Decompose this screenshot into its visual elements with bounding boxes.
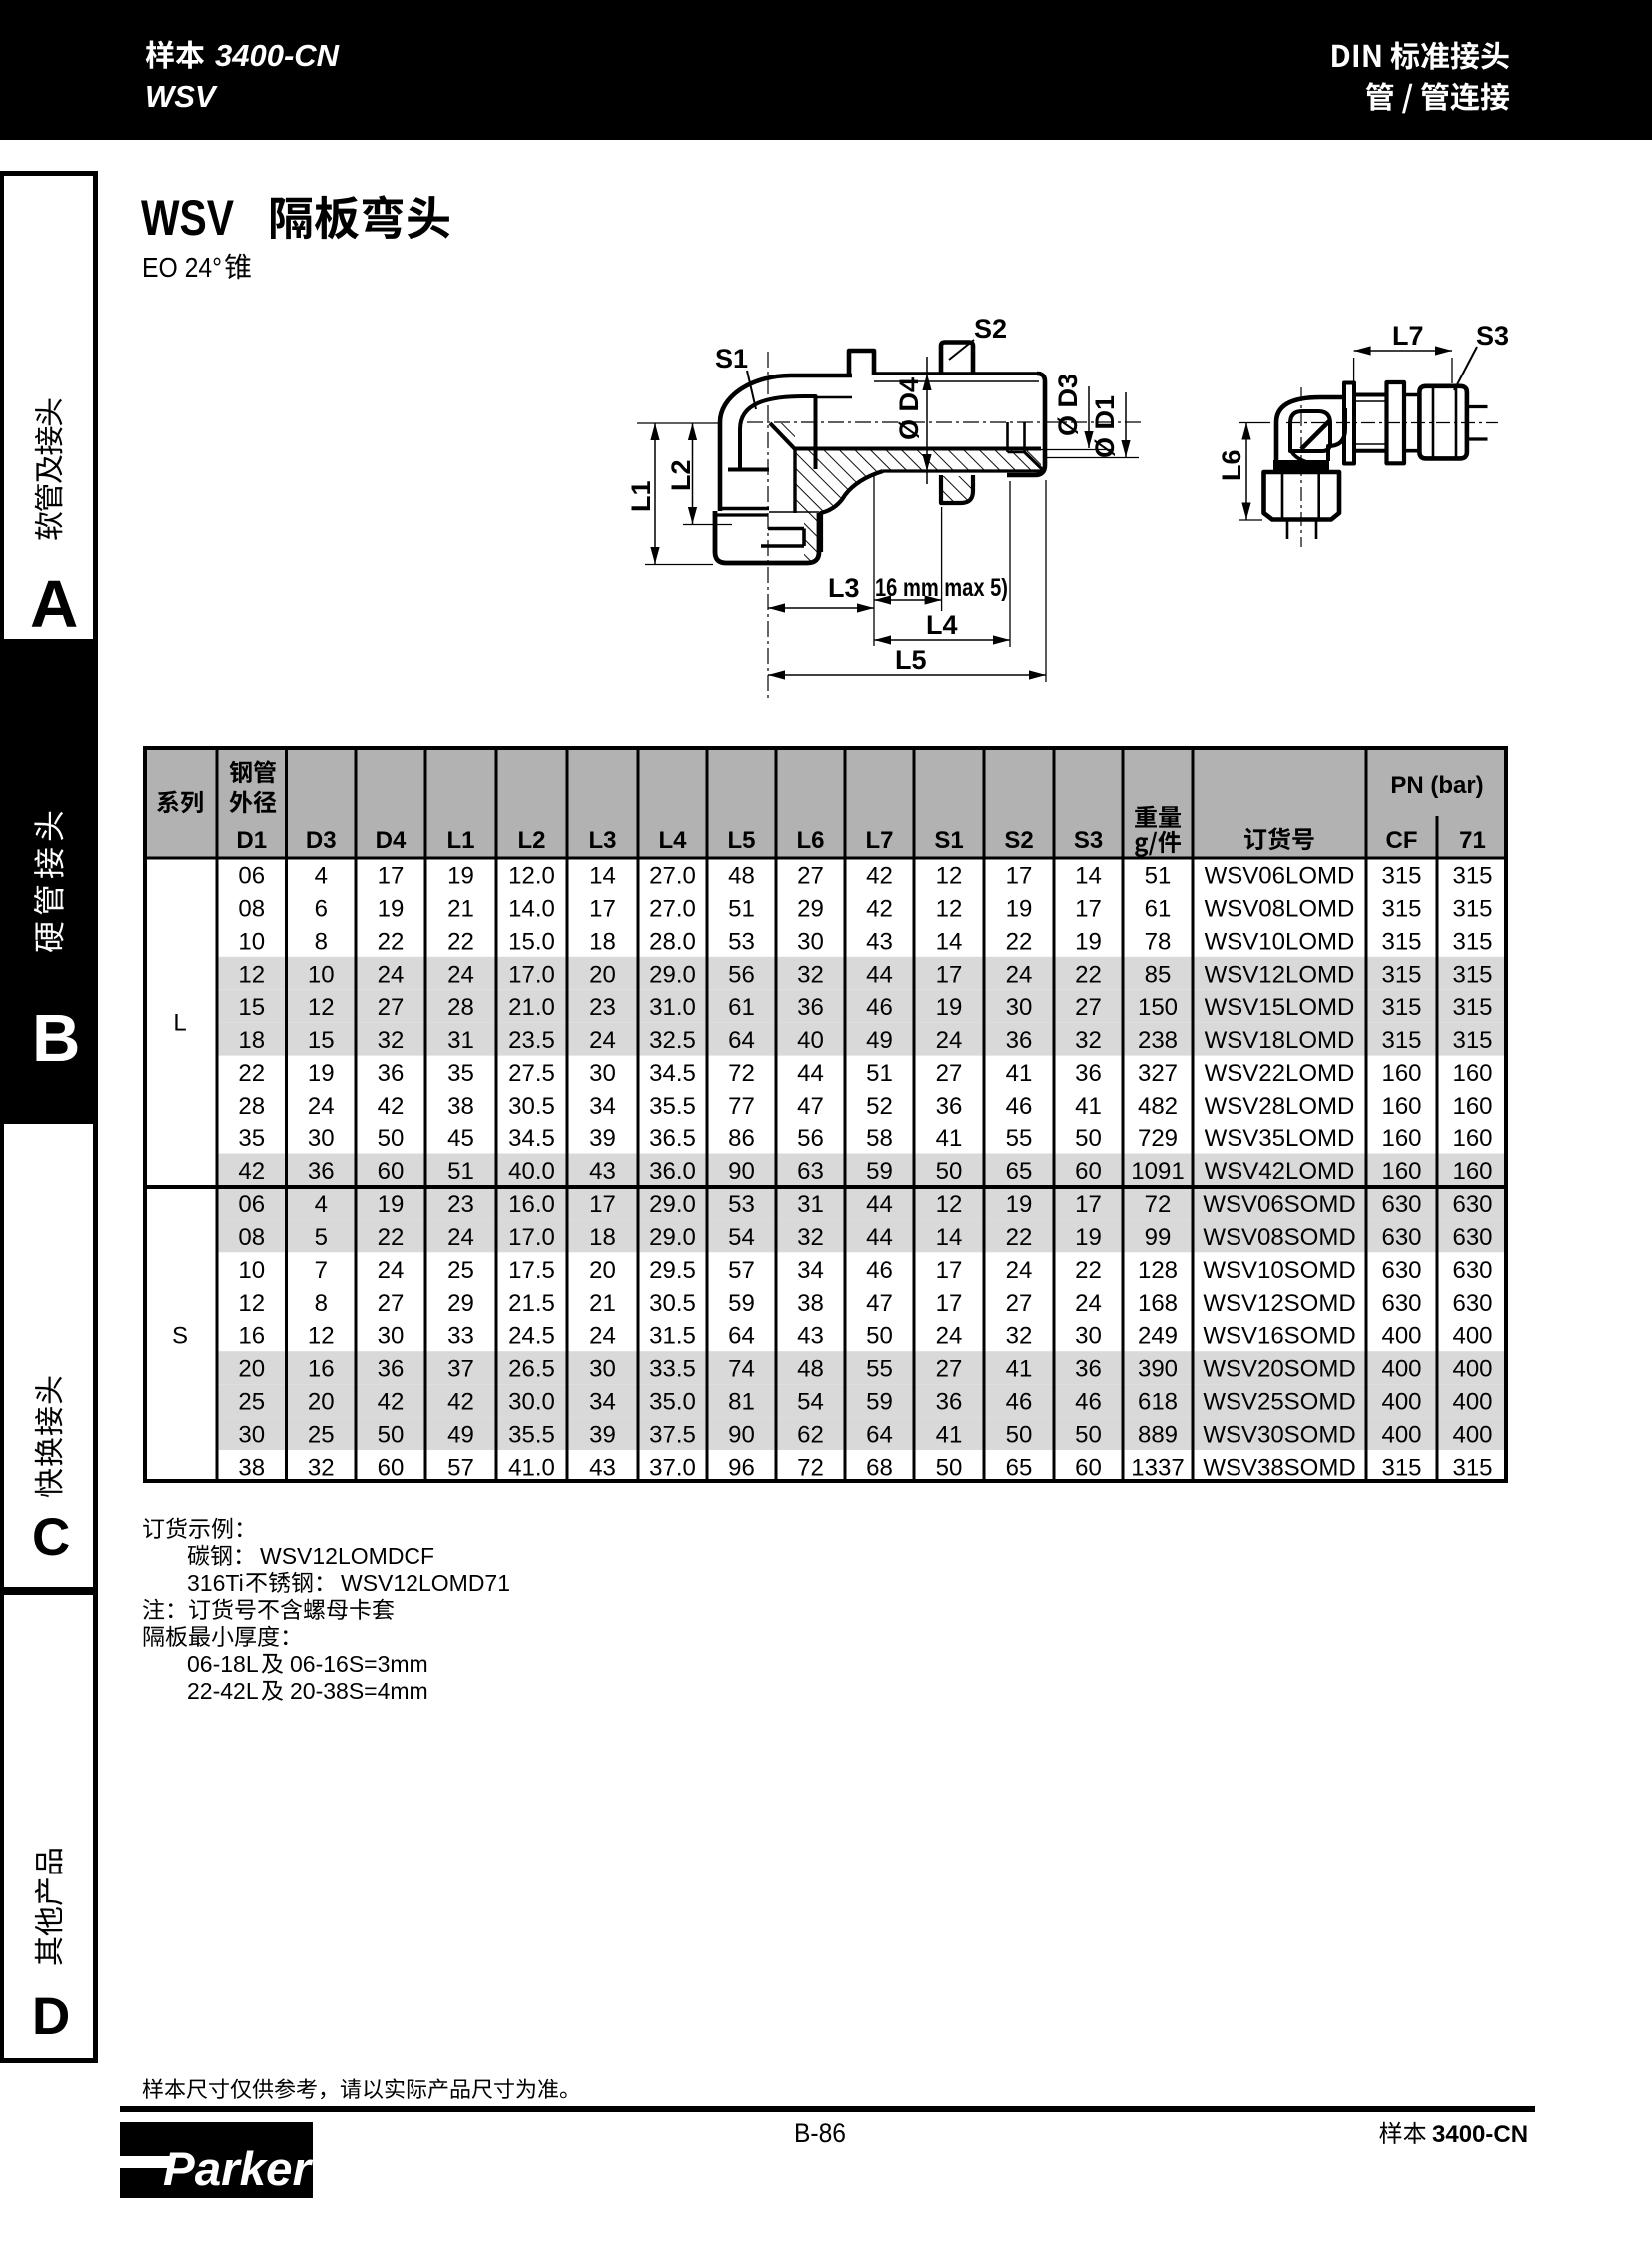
svg-text:18: 18	[589, 928, 616, 955]
svg-text:12: 12	[238, 961, 265, 988]
svg-text:34.5: 34.5	[508, 1125, 555, 1152]
svg-text:12: 12	[238, 1290, 265, 1317]
svg-text:L: L	[173, 1010, 186, 1037]
svg-text:17: 17	[589, 895, 616, 922]
svg-text:59: 59	[866, 1389, 893, 1416]
svg-text:630: 630	[1381, 1257, 1421, 1284]
svg-text:17: 17	[1075, 895, 1102, 922]
svg-text:12: 12	[936, 1191, 963, 1218]
svg-text:L2: L2	[666, 459, 696, 491]
svg-text:150: 150	[1138, 994, 1178, 1021]
svg-text:35.0: 35.0	[649, 1389, 696, 1416]
svg-text:30: 30	[1006, 994, 1033, 1021]
svg-text:19: 19	[1006, 1191, 1033, 1218]
svg-text:D4: D4	[376, 827, 407, 854]
svg-text:27: 27	[936, 1356, 963, 1383]
svg-text:64: 64	[866, 1422, 893, 1449]
svg-text:96: 96	[728, 1455, 755, 1482]
svg-text:43: 43	[589, 1455, 616, 1482]
svg-text:60: 60	[1075, 1158, 1102, 1185]
svg-text:WSV25SOMD: WSV25SOMD	[1203, 1389, 1355, 1416]
svg-text:41.0: 41.0	[508, 1455, 555, 1482]
svg-text:168: 168	[1138, 1290, 1178, 1317]
svg-text:L1: L1	[626, 480, 656, 512]
svg-text:630: 630	[1452, 1257, 1492, 1284]
svg-text:23: 23	[589, 994, 616, 1021]
svg-text:86: 86	[728, 1125, 755, 1152]
svg-text:51: 51	[447, 1158, 474, 1185]
svg-text:17: 17	[378, 862, 405, 889]
svg-text:46: 46	[866, 994, 893, 1021]
svg-text:22: 22	[378, 1224, 405, 1251]
svg-text:32: 32	[1006, 1323, 1033, 1350]
svg-text:C: C	[32, 1508, 70, 1567]
svg-text:19: 19	[1075, 928, 1102, 955]
svg-text:22: 22	[447, 928, 474, 955]
svg-text:315: 315	[1452, 994, 1492, 1021]
svg-text:315: 315	[1452, 928, 1492, 955]
svg-text:L3: L3	[828, 573, 860, 603]
svg-text:36: 36	[378, 1356, 405, 1383]
svg-text:50: 50	[378, 1422, 405, 1449]
svg-text:27: 27	[378, 994, 405, 1021]
svg-text:WSV: WSV	[145, 79, 218, 114]
svg-text:46: 46	[1006, 1093, 1033, 1120]
svg-text:32: 32	[1075, 1027, 1102, 1054]
svg-text:58: 58	[866, 1125, 893, 1152]
svg-text:630: 630	[1381, 1290, 1421, 1317]
svg-text:43: 43	[589, 1158, 616, 1185]
svg-text:WSV28LOMD: WSV28LOMD	[1205, 1093, 1355, 1120]
svg-text:WSV10SOMD: WSV10SOMD	[1203, 1257, 1355, 1284]
svg-text:15.0: 15.0	[508, 928, 555, 955]
svg-text:68: 68	[866, 1455, 893, 1482]
svg-text:S3: S3	[1074, 827, 1103, 854]
svg-text:19: 19	[1075, 1224, 1102, 1251]
svg-text:3400-CN: 3400-CN	[215, 38, 340, 73]
svg-text:65: 65	[1006, 1455, 1033, 1482]
svg-text:729: 729	[1138, 1125, 1178, 1152]
svg-text:A: A	[30, 567, 78, 642]
svg-text:72: 72	[1145, 1191, 1172, 1218]
svg-text:99: 99	[1145, 1224, 1172, 1251]
svg-text:24: 24	[936, 1323, 963, 1350]
svg-text:19: 19	[378, 1191, 405, 1218]
svg-text:10: 10	[308, 961, 335, 988]
svg-text:46: 46	[1006, 1389, 1033, 1416]
svg-text:400: 400	[1381, 1389, 1421, 1416]
svg-text:Parker: Parker	[163, 2142, 314, 2195]
svg-text:17.5: 17.5	[508, 1257, 555, 1284]
svg-text:400: 400	[1381, 1422, 1421, 1449]
svg-text:WSV08LOMD: WSV08LOMD	[1205, 895, 1355, 922]
svg-text:65: 65	[1006, 1158, 1033, 1185]
svg-text:315: 315	[1381, 895, 1421, 922]
svg-text:06: 06	[238, 1191, 265, 1218]
svg-text:29: 29	[797, 895, 824, 922]
svg-text:WSV42LOMD: WSV42LOMD	[1205, 1158, 1355, 1185]
svg-text:B-86: B-86	[794, 2118, 846, 2148]
svg-text:WSV18LOMD: WSV18LOMD	[1205, 1027, 1355, 1054]
svg-text:60: 60	[1075, 1455, 1102, 1482]
svg-text:CF: CF	[1386, 827, 1418, 854]
svg-text:20: 20	[589, 961, 616, 988]
svg-text:19: 19	[308, 1060, 335, 1087]
svg-text:41: 41	[936, 1125, 963, 1152]
svg-text:400: 400	[1381, 1356, 1421, 1383]
svg-text:WSV06LOMD: WSV06LOMD	[1205, 862, 1355, 889]
svg-text:14: 14	[936, 1224, 963, 1251]
svg-text:24: 24	[589, 1323, 616, 1350]
svg-text:27: 27	[797, 862, 824, 889]
svg-text:21: 21	[589, 1290, 616, 1317]
svg-text:23: 23	[447, 1191, 474, 1218]
svg-text:35: 35	[238, 1125, 265, 1152]
svg-text:12: 12	[936, 895, 963, 922]
svg-text:22: 22	[1006, 1224, 1033, 1251]
svg-text:WSV10LOMD: WSV10LOMD	[1205, 928, 1355, 955]
svg-text:25: 25	[447, 1257, 474, 1284]
svg-text:42: 42	[866, 895, 893, 922]
svg-text:60: 60	[378, 1455, 405, 1482]
svg-text:28: 28	[238, 1093, 265, 1120]
svg-text:17.0: 17.0	[508, 1224, 555, 1251]
svg-text:50: 50	[1075, 1125, 1102, 1152]
svg-text:160: 160	[1452, 1060, 1492, 1087]
svg-text:37: 37	[447, 1356, 474, 1383]
svg-text:30: 30	[589, 1356, 616, 1383]
svg-text:24: 24	[1075, 1290, 1102, 1317]
svg-text:29.5: 29.5	[649, 1257, 696, 1284]
svg-text:36.5: 36.5	[649, 1125, 696, 1152]
svg-text:WSV16SOMD: WSV16SOMD	[1203, 1323, 1355, 1350]
svg-text:S2: S2	[974, 314, 1007, 344]
svg-text:16: 16	[308, 1356, 335, 1383]
svg-text:06: 06	[238, 862, 265, 889]
svg-text:PN (bar): PN (bar)	[1390, 772, 1483, 799]
svg-text:400: 400	[1452, 1389, 1492, 1416]
svg-text:63: 63	[797, 1158, 824, 1185]
svg-text:51: 51	[866, 1060, 893, 1087]
svg-text:630: 630	[1381, 1191, 1421, 1218]
svg-text:39: 39	[589, 1125, 616, 1152]
svg-text:57: 57	[447, 1455, 474, 1482]
svg-text:38: 38	[238, 1455, 265, 1482]
svg-text:630: 630	[1452, 1191, 1492, 1218]
svg-text:Ø D3: Ø D3	[1053, 374, 1083, 436]
svg-text:37.0: 37.0	[649, 1455, 696, 1482]
svg-text:32: 32	[378, 1027, 405, 1054]
svg-text:30.0: 30.0	[508, 1389, 555, 1416]
svg-text:24.5: 24.5	[508, 1323, 555, 1350]
svg-text:32.5: 32.5	[649, 1027, 696, 1054]
svg-text:61: 61	[1145, 895, 1172, 922]
svg-text:42: 42	[447, 1389, 474, 1416]
svg-text:16.0: 16.0	[508, 1191, 555, 1218]
svg-text:16: 16	[238, 1323, 265, 1350]
svg-text:24: 24	[1006, 961, 1033, 988]
svg-text:55: 55	[866, 1356, 893, 1383]
svg-text:400: 400	[1381, 1323, 1421, 1350]
svg-text:22: 22	[1006, 928, 1033, 955]
svg-text:D1: D1	[236, 827, 267, 854]
svg-text:S1: S1	[715, 344, 748, 374]
svg-text:30: 30	[1075, 1323, 1102, 1350]
svg-text:25: 25	[238, 1389, 265, 1416]
svg-text:L3: L3	[588, 827, 616, 854]
svg-text:64: 64	[728, 1323, 755, 1350]
svg-text:19: 19	[378, 895, 405, 922]
svg-text:81: 81	[728, 1389, 755, 1416]
svg-text:31: 31	[797, 1191, 824, 1218]
svg-text:50: 50	[1075, 1422, 1102, 1449]
svg-text:WSV38SOMD: WSV38SOMD	[1203, 1455, 1355, 1482]
svg-text:400: 400	[1452, 1323, 1492, 1350]
svg-text:20-38S=4mm: 20-38S=4mm	[290, 1678, 428, 1704]
svg-text:46: 46	[1075, 1389, 1102, 1416]
svg-text:WSV35LOMD: WSV35LOMD	[1205, 1125, 1355, 1152]
svg-text:315: 315	[1452, 1027, 1492, 1054]
svg-text:47: 47	[797, 1093, 824, 1120]
svg-text:WSV20SOMD: WSV20SOMD	[1203, 1356, 1355, 1383]
svg-text:47: 47	[866, 1290, 893, 1317]
svg-text:390: 390	[1138, 1356, 1178, 1383]
svg-text:32: 32	[797, 961, 824, 988]
svg-text:62: 62	[797, 1422, 824, 1449]
svg-text:15: 15	[308, 1027, 335, 1054]
svg-text:41: 41	[1006, 1356, 1033, 1383]
svg-text:L1: L1	[446, 827, 474, 854]
svg-text:54: 54	[797, 1389, 824, 1416]
svg-text:17: 17	[936, 1290, 963, 1317]
svg-text:8: 8	[315, 1290, 328, 1317]
svg-text:40: 40	[797, 1027, 824, 1054]
svg-text:1337: 1337	[1131, 1455, 1184, 1482]
svg-text:29.0: 29.0	[649, 961, 696, 988]
svg-text:42: 42	[238, 1158, 265, 1185]
svg-text:400: 400	[1452, 1356, 1492, 1383]
svg-text:27.5: 27.5	[508, 1060, 555, 1087]
svg-text:30.5: 30.5	[508, 1093, 555, 1120]
svg-text:44: 44	[866, 961, 893, 988]
svg-text:64: 64	[728, 1027, 755, 1054]
svg-text:WSV12LOMD71: WSV12LOMD71	[341, 1570, 510, 1596]
svg-text:18: 18	[238, 1027, 265, 1054]
svg-text:S3: S3	[1476, 321, 1509, 351]
svg-text:32: 32	[308, 1455, 335, 1482]
svg-text:315: 315	[1381, 862, 1421, 889]
svg-text:EO 24°: EO 24°	[142, 252, 222, 283]
svg-text:315: 315	[1452, 895, 1492, 922]
svg-text:L7: L7	[865, 827, 893, 854]
svg-text:14: 14	[936, 928, 963, 955]
svg-text:12: 12	[308, 994, 335, 1021]
svg-text:160: 160	[1381, 1060, 1421, 1087]
svg-text:D3: D3	[306, 827, 337, 854]
svg-text:27: 27	[1006, 1290, 1033, 1317]
svg-text:WSV08SOMD: WSV08SOMD	[1203, 1224, 1355, 1251]
svg-text:38: 38	[797, 1290, 824, 1317]
svg-text:72: 72	[797, 1455, 824, 1482]
svg-text:17.0: 17.0	[508, 961, 555, 988]
svg-text:53: 53	[728, 928, 755, 955]
svg-text:21: 21	[447, 895, 474, 922]
svg-text:315: 315	[1452, 862, 1492, 889]
svg-text:WSV12SOMD: WSV12SOMD	[1203, 1290, 1355, 1317]
svg-text:50: 50	[936, 1158, 963, 1185]
svg-text:315: 315	[1381, 928, 1421, 955]
svg-text:889: 889	[1138, 1422, 1178, 1449]
svg-text:33: 33	[447, 1323, 474, 1350]
svg-text:36: 36	[1075, 1356, 1102, 1383]
svg-text:19: 19	[1006, 895, 1033, 922]
svg-text:15: 15	[238, 994, 265, 1021]
svg-text:WSV22LOMD: WSV22LOMD	[1205, 1060, 1355, 1087]
svg-text:24: 24	[589, 1027, 616, 1054]
svg-text:45: 45	[447, 1125, 474, 1152]
svg-text:249: 249	[1138, 1323, 1178, 1350]
svg-text:50: 50	[378, 1125, 405, 1152]
svg-text:L4: L4	[926, 610, 958, 640]
svg-text:42: 42	[866, 862, 893, 889]
svg-text:L5: L5	[895, 645, 927, 675]
svg-text:315: 315	[1452, 961, 1492, 988]
svg-text:27.0: 27.0	[649, 895, 696, 922]
svg-text:L6: L6	[1217, 449, 1246, 481]
svg-text:36: 36	[1006, 1027, 1033, 1054]
svg-text:48: 48	[797, 1356, 824, 1383]
svg-text:39: 39	[589, 1422, 616, 1449]
svg-text:4: 4	[315, 1191, 328, 1218]
svg-text:40.0: 40.0	[508, 1158, 555, 1185]
svg-text:38: 38	[447, 1093, 474, 1120]
svg-text:30: 30	[589, 1060, 616, 1087]
svg-text:90: 90	[728, 1158, 755, 1185]
svg-text:19: 19	[447, 862, 474, 889]
svg-text:24: 24	[308, 1093, 335, 1120]
svg-text:L5: L5	[727, 827, 755, 854]
svg-text:57: 57	[728, 1257, 755, 1284]
svg-text:400: 400	[1452, 1422, 1492, 1449]
svg-text:23.5: 23.5	[508, 1027, 555, 1054]
svg-text:29.0: 29.0	[649, 1191, 696, 1218]
svg-text:14: 14	[1075, 862, 1102, 889]
svg-text:52: 52	[866, 1093, 893, 1120]
svg-text:WSV12LOMDCF: WSV12LOMDCF	[260, 1543, 434, 1569]
svg-text:36: 36	[936, 1389, 963, 1416]
svg-text:316Ti: 316Ti	[187, 1570, 244, 1596]
svg-text:10: 10	[238, 1257, 265, 1284]
svg-text:30.5: 30.5	[649, 1290, 696, 1317]
svg-text:D: D	[32, 1987, 70, 2046]
svg-text:17: 17	[1006, 862, 1033, 889]
svg-text:24: 24	[378, 961, 405, 988]
svg-text:85: 85	[1145, 961, 1172, 988]
svg-text:12.0: 12.0	[508, 862, 555, 889]
svg-text:08: 08	[238, 895, 265, 922]
svg-text:59: 59	[728, 1290, 755, 1317]
svg-text:19: 19	[936, 994, 963, 1021]
svg-text:24: 24	[447, 961, 474, 988]
svg-text:71: 71	[1459, 827, 1486, 854]
svg-text:160: 160	[1452, 1125, 1492, 1152]
svg-text:74: 74	[728, 1356, 755, 1383]
svg-text:630: 630	[1381, 1224, 1421, 1251]
svg-text:S: S	[172, 1322, 188, 1349]
svg-text:90: 90	[728, 1422, 755, 1449]
svg-text:482: 482	[1138, 1093, 1178, 1120]
svg-text:22: 22	[378, 928, 405, 955]
svg-text:B: B	[32, 1001, 80, 1076]
svg-text:72: 72	[728, 1060, 755, 1087]
svg-text:30: 30	[238, 1422, 265, 1449]
svg-text:44: 44	[866, 1191, 893, 1218]
svg-text:17: 17	[589, 1191, 616, 1218]
svg-text:50: 50	[1006, 1422, 1033, 1449]
svg-text:L4: L4	[658, 827, 687, 854]
svg-text:06-18L: 06-18L	[187, 1651, 259, 1677]
svg-text:S1: S1	[934, 827, 963, 854]
svg-text:L2: L2	[517, 827, 545, 854]
svg-text:128: 128	[1138, 1257, 1178, 1284]
svg-text:315: 315	[1381, 994, 1421, 1021]
svg-text:36: 36	[936, 1093, 963, 1120]
svg-text:31.0: 31.0	[649, 994, 696, 1021]
svg-text:35.5: 35.5	[508, 1422, 555, 1449]
svg-text:34: 34	[589, 1093, 616, 1120]
svg-text:L7: L7	[1392, 321, 1424, 351]
svg-text:22: 22	[1075, 961, 1102, 988]
svg-text:29.0: 29.0	[649, 1224, 696, 1251]
svg-text:17: 17	[1075, 1191, 1102, 1218]
svg-text:41: 41	[1075, 1093, 1102, 1120]
svg-text:53: 53	[728, 1191, 755, 1218]
svg-text:24: 24	[1006, 1257, 1033, 1284]
svg-text:12: 12	[308, 1323, 335, 1350]
svg-text:14.0: 14.0	[508, 895, 555, 922]
svg-text:20: 20	[238, 1356, 265, 1383]
svg-text:630: 630	[1452, 1290, 1492, 1317]
svg-text:17: 17	[936, 961, 963, 988]
svg-text:14: 14	[589, 862, 616, 889]
svg-text:30: 30	[797, 928, 824, 955]
svg-text:160: 160	[1381, 1125, 1421, 1152]
svg-text:26.5: 26.5	[508, 1356, 555, 1383]
svg-text:160: 160	[1452, 1158, 1492, 1185]
svg-text:25: 25	[308, 1422, 335, 1449]
svg-text:315: 315	[1381, 1455, 1421, 1482]
svg-text:27: 27	[1075, 994, 1102, 1021]
svg-text:30: 30	[308, 1125, 335, 1152]
svg-text:31: 31	[447, 1027, 474, 1054]
svg-text:55: 55	[1006, 1125, 1033, 1152]
svg-text:42: 42	[378, 1389, 405, 1416]
svg-text:33.5: 33.5	[649, 1356, 696, 1383]
svg-text:35: 35	[447, 1060, 474, 1087]
svg-text:S2: S2	[1004, 827, 1033, 854]
svg-text:48: 48	[728, 862, 755, 889]
svg-text:WSV06SOMD: WSV06SOMD	[1203, 1191, 1355, 1218]
svg-text:10: 10	[238, 928, 265, 955]
svg-text:77: 77	[728, 1093, 755, 1120]
svg-text:22: 22	[1075, 1257, 1102, 1284]
svg-text:22: 22	[238, 1060, 265, 1087]
svg-text:35.5: 35.5	[649, 1093, 696, 1120]
svg-text:34: 34	[797, 1257, 824, 1284]
svg-text:29: 29	[447, 1290, 474, 1317]
svg-text:36: 36	[378, 1060, 405, 1087]
svg-text:44: 44	[797, 1060, 824, 1087]
